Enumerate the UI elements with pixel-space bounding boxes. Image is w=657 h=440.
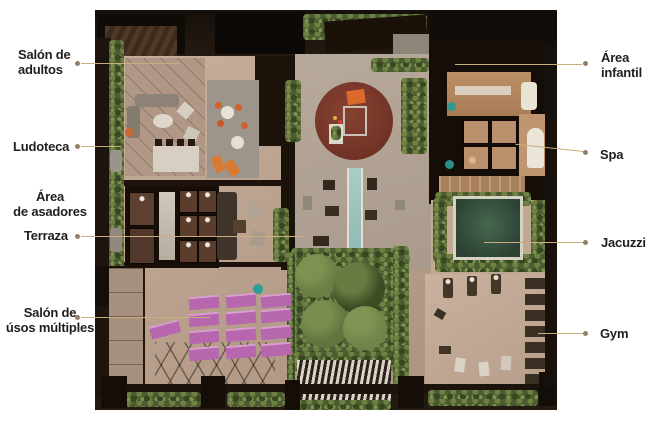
- plants-left-of-circle: [285, 80, 301, 142]
- leader-dot-terraza: [75, 234, 80, 239]
- label-line: Salón de: [18, 47, 71, 62]
- grill-counter: [159, 192, 175, 260]
- play-ball: [447, 102, 456, 111]
- grill-cell: [179, 190, 198, 213]
- planter: [110, 228, 122, 252]
- planter: [395, 200, 405, 210]
- kids-room-shelf: [455, 86, 511, 95]
- leader-line-terraza: [81, 236, 304, 237]
- yoga-mat: [225, 327, 256, 343]
- spa-cabin: [491, 120, 517, 144]
- hedge-bottom: [428, 390, 538, 406]
- label-line: Gym: [600, 326, 628, 341]
- label-line: Jacuzzi: [601, 235, 646, 250]
- label-line: Área: [6, 189, 94, 204]
- gym-treadmill: [467, 276, 477, 296]
- pillar: [201, 376, 225, 408]
- hedge-bottom: [125, 392, 201, 407]
- hedge-top-center: [371, 58, 429, 72]
- yoga-mat: [225, 293, 256, 309]
- bench: [313, 236, 329, 246]
- planter: [303, 196, 312, 210]
- label-line: úsos múltiples: [0, 320, 100, 335]
- bench: [367, 178, 377, 190]
- grill-cabinet: [129, 192, 155, 226]
- leader-line-jacuzzi: [484, 242, 583, 243]
- pillar: [285, 380, 300, 410]
- massage-bed: [527, 128, 544, 168]
- ludoteca-craft-table: [153, 146, 199, 172]
- pillar: [398, 376, 424, 408]
- wall-right: [545, 46, 557, 386]
- amenities-floor-plan-figure: Salón de adultos Ludoteca Área de asador…: [0, 0, 657, 440]
- jacuzzi-pool: [453, 196, 523, 260]
- roof-block: [215, 12, 305, 54]
- label-area-de-asadores: Área de asadores: [6, 189, 94, 219]
- playground-toy: [333, 116, 337, 120]
- kids-table: [231, 136, 244, 149]
- spa-cabin: [463, 120, 489, 144]
- label-line: de asadores: [6, 204, 94, 219]
- kids-table: [221, 106, 234, 119]
- gym-treadmill: [443, 278, 453, 298]
- floor-plan: [95, 10, 557, 410]
- gym-bench: [478, 362, 489, 377]
- bench: [325, 206, 339, 216]
- leader-line-salon-adultos: [81, 63, 180, 64]
- yoga-mat: [260, 308, 291, 324]
- leader-line-usos-multiples: [81, 317, 210, 318]
- roof-walkway: [393, 34, 429, 54]
- leader-line-gym: [538, 333, 583, 334]
- terrace-table: [233, 220, 246, 233]
- playground-planter-plant: [331, 126, 341, 140]
- lap-pool: [347, 168, 363, 252]
- label-area-infantil: Área infantil: [601, 50, 642, 80]
- hedge-right-of-courtyard: [393, 246, 409, 392]
- leader-dot-gym: [583, 331, 588, 336]
- grill-cell: [198, 240, 217, 263]
- plants-right-of-circle: [401, 78, 427, 154]
- yoga-mat: [260, 293, 291, 309]
- label-spa: Spa: [600, 147, 623, 162]
- grill-cell: [198, 215, 217, 238]
- label-ludoteca: Ludoteca: [13, 139, 69, 154]
- leader-dot-ludoteca: [75, 144, 80, 149]
- grill-cell: [179, 240, 198, 263]
- leader-dot-area-infantil: [583, 61, 588, 66]
- spa-cabin: [463, 146, 489, 170]
- pillar: [101, 376, 127, 408]
- yoga-mat: [188, 312, 219, 328]
- yoga-mat: [225, 344, 256, 360]
- jacuzzi-hedge-left: [433, 198, 447, 262]
- courtyard-tree: [343, 306, 387, 350]
- label-line: infantil: [601, 65, 642, 80]
- yoga-mat: [188, 329, 219, 345]
- kids-chair: [241, 122, 248, 129]
- coffee-table: [153, 114, 173, 128]
- gym-equipment-rack: [525, 278, 547, 386]
- striped-deck: [297, 360, 391, 404]
- grill-cell: [198, 190, 217, 213]
- leader-dot-usos-multiples: [75, 315, 80, 320]
- play-ball: [445, 160, 454, 169]
- gym-bench: [454, 357, 466, 372]
- gym-dumbbells: [439, 346, 451, 354]
- hedge-bottom: [295, 400, 391, 410]
- gym-treadmill: [491, 274, 501, 294]
- label-line: Área: [601, 50, 642, 65]
- hedge-bottom: [227, 392, 285, 407]
- leader-dot-salon-adultos: [75, 61, 80, 66]
- pouf: [125, 128, 134, 137]
- grill-cell: [179, 215, 198, 238]
- kids-chair: [235, 104, 242, 111]
- multiuse-closets: [109, 268, 145, 386]
- bench: [365, 210, 377, 220]
- courtyard-tree: [301, 300, 349, 348]
- gym-bench: [501, 356, 512, 371]
- sofa: [135, 94, 179, 107]
- playground-frame: [343, 106, 367, 136]
- yoga-mat: [225, 310, 256, 326]
- terrace-plant: [273, 208, 289, 262]
- label-jacuzzi: Jacuzzi: [601, 235, 646, 250]
- leader-dot-spa: [583, 150, 588, 155]
- grill-cabinet: [129, 228, 155, 264]
- yoga-mat: [260, 342, 291, 358]
- bench: [323, 180, 335, 190]
- label-gym: Gym: [600, 326, 628, 341]
- label-line: adultos: [18, 62, 71, 77]
- label-line: Ludoteca: [13, 139, 69, 154]
- yoga-mat: [188, 295, 219, 311]
- label-line: Spa: [600, 147, 623, 162]
- kids-chair: [217, 120, 224, 127]
- leader-line-ludoteca: [81, 146, 121, 147]
- kids-room-bed: [521, 82, 537, 110]
- playground-canopy: [346, 89, 366, 105]
- kids-chair: [215, 102, 222, 109]
- leader-dot-jacuzzi: [583, 240, 588, 245]
- yoga-mat: [188, 346, 219, 362]
- label-salon-de-usos-multiples: Salón de úsos múltiples: [0, 305, 100, 335]
- label-terraza: Terraza: [24, 228, 68, 243]
- planter: [110, 150, 122, 172]
- label-salon-de-adultos: Salón de adultos: [18, 47, 71, 77]
- yoga-mat: [260, 325, 291, 341]
- label-line: Terraza: [24, 228, 68, 243]
- spa-cabin: [491, 146, 517, 170]
- leader-line-area-infantil: [455, 64, 582, 65]
